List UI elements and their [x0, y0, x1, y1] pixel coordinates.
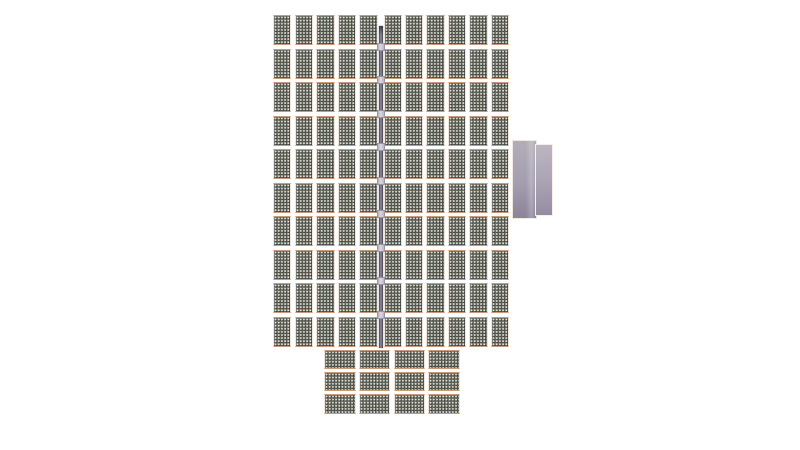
pv-panel[interactable] [448, 283, 466, 313]
pv-panel[interactable] [394, 394, 426, 413]
pv-panel[interactable] [491, 283, 509, 313]
pv-panel[interactable] [491, 317, 509, 347]
pv-panel[interactable] [448, 49, 466, 79]
pv-panel[interactable] [295, 116, 313, 146]
pv-array-main-right [384, 15, 509, 347]
pv-panel[interactable] [359, 116, 377, 146]
pv-panel[interactable] [295, 15, 313, 45]
inverter-box[interactable] [512, 139, 555, 220]
pv-panel[interactable] [273, 15, 291, 45]
pv-panel[interactable] [448, 216, 466, 246]
pv-panel[interactable] [426, 216, 444, 246]
pv-panel[interactable] [469, 116, 487, 146]
inverter-body [512, 140, 537, 219]
pv-panel[interactable] [469, 49, 487, 79]
pv-panel[interactable] [405, 149, 423, 179]
rail-clamp [377, 177, 385, 185]
pv-panel[interactable] [405, 250, 423, 280]
pv-panel[interactable] [384, 283, 402, 313]
pv-panel[interactable] [324, 350, 356, 369]
pv-panel[interactable] [338, 250, 356, 280]
pv-panel[interactable] [469, 317, 487, 347]
pv-panel[interactable] [273, 317, 291, 347]
pv-panel[interactable] [359, 317, 377, 347]
pv-array-lower [324, 350, 460, 414]
pv-panel[interactable] [273, 250, 291, 280]
pv-panel[interactable] [405, 216, 423, 246]
pv-panel[interactable] [469, 250, 487, 280]
pv-panel[interactable] [426, 317, 444, 347]
pv-panel[interactable] [469, 283, 487, 313]
pv-panel[interactable] [469, 183, 487, 213]
pv-panel[interactable] [448, 183, 466, 213]
pv-panel[interactable] [359, 216, 377, 246]
pv-panel[interactable] [359, 283, 377, 313]
pv-panel[interactable] [359, 183, 377, 213]
pv-panel[interactable] [359, 49, 377, 79]
pv-panel[interactable] [384, 15, 402, 45]
pv-panel[interactable] [316, 149, 334, 179]
pv-panel[interactable] [448, 82, 466, 112]
pv-panel[interactable] [316, 317, 334, 347]
rail-clamp [377, 210, 385, 218]
rail-clamp [377, 311, 385, 319]
pv-panel[interactable] [384, 183, 402, 213]
pv-panel[interactable] [338, 317, 356, 347]
inverter-lid [535, 144, 553, 216]
pv-array-main-left [273, 15, 378, 347]
pv-panel[interactable] [426, 283, 444, 313]
pv-panel[interactable] [426, 116, 444, 146]
pv-panel[interactable] [394, 372, 426, 391]
pv-panel[interactable] [426, 149, 444, 179]
pv-panel[interactable] [338, 15, 356, 45]
pv-panel[interactable] [316, 183, 334, 213]
pv-panel[interactable] [491, 149, 509, 179]
pv-panel[interactable] [295, 250, 313, 280]
pv-panel[interactable] [469, 216, 487, 246]
pv-panel[interactable] [384, 250, 402, 280]
pv-panel[interactable] [359, 250, 377, 280]
pv-panel[interactable] [316, 82, 334, 112]
pv-panel[interactable] [384, 82, 402, 112]
pv-panel[interactable] [338, 183, 356, 213]
pv-panel[interactable] [359, 82, 377, 112]
pv-panel[interactable] [324, 394, 356, 413]
pv-panel[interactable] [448, 116, 466, 146]
pv-panel[interactable] [273, 216, 291, 246]
rail-clamp [377, 143, 385, 151]
pv-panel[interactable] [295, 82, 313, 112]
pv-panel[interactable] [338, 283, 356, 313]
pv-panel[interactable] [359, 149, 377, 179]
pv-panel[interactable] [359, 15, 377, 45]
pv-panel[interactable] [426, 15, 444, 45]
pv-panel[interactable] [448, 250, 466, 280]
pv-panel[interactable] [338, 49, 356, 79]
pv-panel[interactable] [295, 183, 313, 213]
pv-panel[interactable] [359, 394, 391, 413]
pv-panel[interactable] [426, 82, 444, 112]
pv-panel[interactable] [338, 149, 356, 179]
pv-panel[interactable] [273, 49, 291, 79]
pv-panel[interactable] [384, 49, 402, 79]
pv-panel[interactable] [359, 350, 391, 369]
pv-panel[interactable] [448, 15, 466, 45]
pv-panel[interactable] [316, 116, 334, 146]
pv-panel[interactable] [426, 250, 444, 280]
pv-panel[interactable] [491, 49, 509, 79]
pv-panel[interactable] [469, 15, 487, 45]
pv-panel[interactable] [384, 116, 402, 146]
pv-panel[interactable] [405, 116, 423, 146]
pv-panel[interactable] [316, 283, 334, 313]
pv-panel[interactable] [359, 372, 391, 391]
pv-panel[interactable] [394, 350, 426, 369]
pv-panel[interactable] [491, 15, 509, 45]
pv-panel[interactable] [448, 149, 466, 179]
pv-panel[interactable] [491, 183, 509, 213]
render-viewport[interactable] [0, 0, 800, 450]
pv-panel[interactable] [316, 49, 334, 79]
pv-panel[interactable] [405, 283, 423, 313]
pv-panel[interactable] [405, 49, 423, 79]
pv-panel[interactable] [469, 82, 487, 112]
pv-panel[interactable] [384, 317, 402, 347]
pv-panel[interactable] [491, 116, 509, 146]
pv-panel[interactable] [428, 394, 460, 413]
pv-panel[interactable] [405, 183, 423, 213]
rail-clamp [377, 76, 385, 84]
pv-panel[interactable] [491, 216, 509, 246]
pv-panel[interactable] [405, 15, 423, 45]
pv-panel[interactable] [273, 82, 291, 112]
rail-clamp [377, 43, 385, 51]
pv-panel[interactable] [273, 116, 291, 146]
pv-panel[interactable] [324, 372, 356, 391]
pv-panel[interactable] [295, 283, 313, 313]
pv-panel[interactable] [426, 49, 444, 79]
pv-panel[interactable] [338, 216, 356, 246]
pv-panel[interactable] [428, 350, 460, 369]
rail-clamp [377, 110, 385, 118]
pv-panel[interactable] [384, 216, 402, 246]
pv-panel[interactable] [273, 283, 291, 313]
pv-panel[interactable] [295, 49, 313, 79]
pv-panel[interactable] [338, 82, 356, 112]
pv-panel[interactable] [405, 82, 423, 112]
pv-panel[interactable] [316, 216, 334, 246]
pv-panel[interactable] [448, 317, 466, 347]
pv-panel[interactable] [295, 149, 313, 179]
pv-panel[interactable] [273, 183, 291, 213]
pv-panel[interactable] [295, 216, 313, 246]
pv-panel[interactable] [428, 372, 460, 391]
pv-panel[interactable] [491, 82, 509, 112]
pv-panel[interactable] [469, 149, 487, 179]
pv-panel[interactable] [384, 149, 402, 179]
rail-clamp [377, 244, 385, 252]
pv-panel[interactable] [405, 317, 423, 347]
pv-panel[interactable] [316, 250, 334, 280]
pv-panel[interactable] [273, 149, 291, 179]
pv-panel[interactable] [316, 15, 334, 45]
pv-panel[interactable] [338, 116, 356, 146]
pv-panel[interactable] [491, 250, 509, 280]
rail-clamp [377, 277, 385, 285]
pv-panel[interactable] [295, 317, 313, 347]
pv-panel[interactable] [426, 183, 444, 213]
